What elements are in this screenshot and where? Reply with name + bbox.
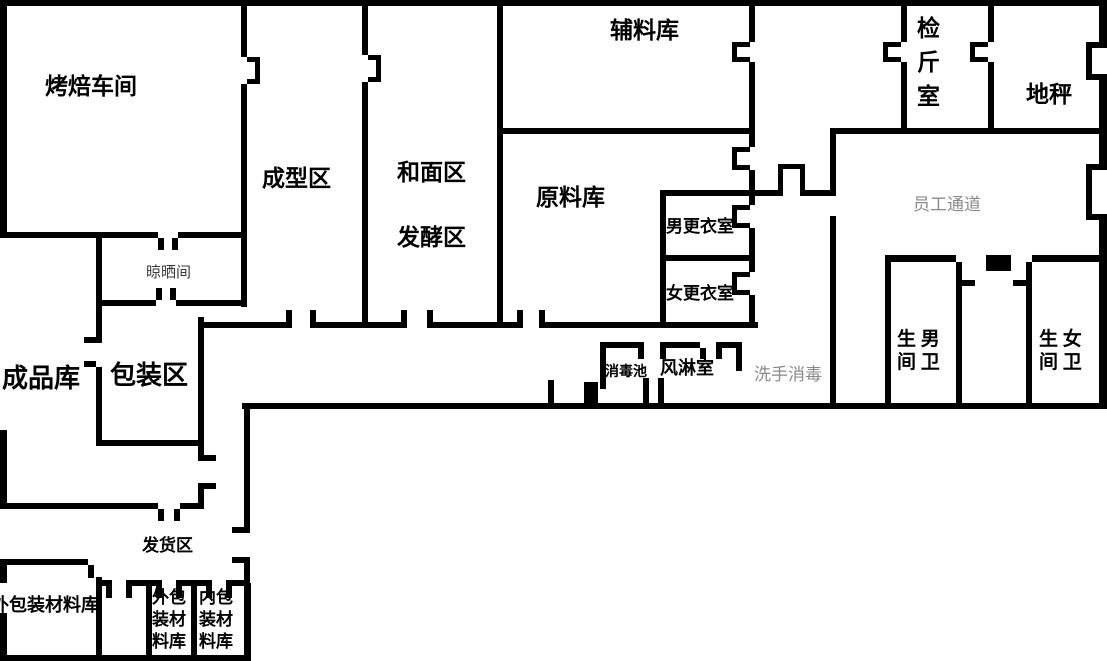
- wall-segment: [830, 128, 1107, 134]
- wall-segment: [735, 272, 750, 277]
- wall-segment: [0, 6, 7, 238]
- room-label-fermentation-area: 发酵区: [397, 225, 466, 251]
- wall-segment: [901, 6, 907, 42]
- wall-segment: [1099, 80, 1107, 166]
- wall-segment: [126, 586, 132, 598]
- wall-segment: [204, 483, 216, 489]
- wall-segment: [1086, 164, 1092, 220]
- room-label-drying-room: 晾晒间: [146, 265, 191, 282]
- room-label-weighing-room: 检 斤 室: [917, 12, 940, 114]
- wall-segment: [735, 57, 750, 62]
- wall-segment: [660, 348, 666, 359]
- wall-segment: [830, 134, 836, 196]
- wall-segment: [660, 255, 752, 261]
- wall-segment: [241, 6, 247, 57]
- room-label-auxiliary-material-warehouse: 辅料库: [610, 18, 679, 44]
- wall-segment: [0, 613, 7, 661]
- wall-segment: [716, 348, 722, 359]
- wall-segment: [643, 378, 649, 403]
- wall-segment: [96, 440, 204, 446]
- room-label-floor-scale: 地秤: [1026, 82, 1072, 108]
- wall-segment: [96, 367, 102, 443]
- wall-segment: [176, 300, 247, 306]
- wall-segment: [401, 310, 407, 322]
- wall-segment: [286, 310, 292, 322]
- wall-segment: [660, 342, 700, 348]
- wall-segment: [974, 57, 988, 62]
- wall-segment: [244, 409, 250, 533]
- wall-segment: [600, 342, 606, 389]
- wall-segment: [749, 62, 755, 147]
- wall-segment: [362, 82, 368, 328]
- wall-segment: [0, 655, 251, 661]
- wall-segment: [986, 255, 1011, 271]
- wall-segment: [638, 348, 644, 359]
- wall-segment: [176, 586, 182, 598]
- wall-segment: [660, 190, 752, 196]
- wall-segment: [0, 232, 158, 238]
- wall-segment: [96, 577, 102, 661]
- wall-segment: [310, 310, 316, 322]
- wall-segment: [988, 62, 994, 132]
- wall-segment: [96, 300, 156, 306]
- wall-segment: [84, 337, 96, 343]
- room-label-hand-wash-disinfection: 洗手消毒: [754, 365, 822, 385]
- wall-segment: [180, 503, 204, 509]
- wall-segment: [1026, 262, 1032, 407]
- wall-segment: [206, 586, 212, 598]
- room-label-staff-corridor: 员工通道: [913, 195, 981, 215]
- wall-segment: [232, 557, 244, 563]
- room-label-dough-mixing-area: 和面区: [397, 160, 466, 186]
- wall-segment: [887, 42, 901, 47]
- wall-segment: [736, 342, 742, 371]
- wall-segment: [156, 586, 162, 598]
- room-label-outer-packaging-material-warehouse-large: 外包装材料库: [0, 595, 99, 616]
- wall-segment: [178, 232, 246, 238]
- wall-segment: [191, 580, 197, 661]
- wall-segment: [735, 205, 750, 210]
- wall-segment: [749, 295, 755, 328]
- room-label-baking-workshop: 烤焙车间: [45, 74, 137, 100]
- wall-segment: [1032, 255, 1107, 262]
- wall-segment: [226, 586, 232, 598]
- wall-segment: [156, 288, 162, 300]
- factory-floorplan: 烤焙车间 成型区 和面区 发酵区 辅料库 原料库 检 斤 室 地秤 员工通道 晾…: [0, 0, 1107, 661]
- wall-segment: [885, 262, 891, 407]
- wall-segment: [885, 255, 956, 262]
- wall-segment: [974, 42, 988, 47]
- wall-segment: [96, 238, 102, 343]
- wall-segment: [0, 430, 7, 509]
- room-label-shipping-area: 发货区: [142, 536, 193, 556]
- wall-segment: [755, 190, 778, 196]
- wall-segment: [0, 559, 88, 565]
- wall-segment: [247, 79, 260, 84]
- wall-segment: [956, 280, 975, 286]
- wall-segment: [0, 503, 158, 509]
- room-label-packaging-area: 包装区: [110, 361, 188, 391]
- room-label-air-shower-room: 风淋室: [660, 358, 714, 379]
- wall-segment: [198, 322, 292, 328]
- room-label-women-toilet: 生 女 间 卫: [1039, 328, 1082, 374]
- room-label-disinfection-pool: 消毒池: [605, 365, 647, 381]
- wall-segment: [735, 165, 750, 170]
- wall-segment: [84, 361, 96, 367]
- wall-segment: [539, 322, 758, 328]
- wall-segment: [749, 6, 755, 42]
- room-label-men-toilet: 生 男 间 卫: [897, 328, 940, 374]
- wall-segment: [548, 380, 554, 403]
- wall-segment: [517, 310, 523, 322]
- wall-segment: [735, 223, 750, 228]
- wall-segment: [658, 378, 664, 403]
- wall-segment: [146, 580, 152, 661]
- wall-segment: [0, 0, 1107, 6]
- wall-segment: [158, 509, 164, 521]
- wall-segment: [749, 170, 755, 205]
- wall-segment: [362, 6, 368, 55]
- wall-segment: [805, 190, 833, 196]
- wall-segment: [170, 288, 176, 300]
- wall-segment: [368, 77, 381, 82]
- wall-segment: [158, 238, 164, 250]
- wall-segment: [174, 509, 180, 521]
- wall-segment: [232, 527, 244, 533]
- wall-segment: [1099, 220, 1107, 409]
- wall-segment: [901, 62, 907, 132]
- wall-segment: [497, 128, 755, 134]
- wall-segment: [106, 586, 112, 598]
- wall-segment: [700, 348, 706, 359]
- room-label-forming-area: 成型区: [262, 166, 331, 192]
- wall-segment: [1099, 6, 1107, 44]
- wall-segment: [245, 583, 251, 661]
- wall-segment: [88, 565, 94, 578]
- wall-segment: [427, 322, 523, 328]
- wall-segment: [735, 290, 750, 295]
- room-label-raw-material-warehouse: 原料库: [536, 185, 605, 211]
- wall-segment: [830, 216, 836, 409]
- wall-segment: [427, 310, 433, 322]
- wall-segment: [242, 403, 1105, 409]
- room-label-men-changing-room: 男更衣室: [666, 217, 734, 237]
- wall-segment: [539, 310, 545, 322]
- wall-segment: [241, 84, 247, 307]
- wall-segment: [584, 382, 598, 403]
- room-label-finished-goods-warehouse: 成品库: [2, 364, 80, 394]
- wall-segment: [204, 455, 216, 461]
- wall-segment: [198, 317, 204, 446]
- wall-segment: [226, 580, 245, 586]
- wall-segment: [887, 57, 901, 62]
- wall-segment: [988, 6, 994, 42]
- wall-segment: [735, 147, 750, 152]
- wall-segment: [497, 6, 503, 328]
- wall-segment: [735, 42, 750, 47]
- wall-segment: [310, 322, 407, 328]
- room-label-women-changing-room: 女更衣室: [666, 284, 734, 304]
- wall-segment: [172, 238, 178, 250]
- wall-segment: [749, 228, 755, 272]
